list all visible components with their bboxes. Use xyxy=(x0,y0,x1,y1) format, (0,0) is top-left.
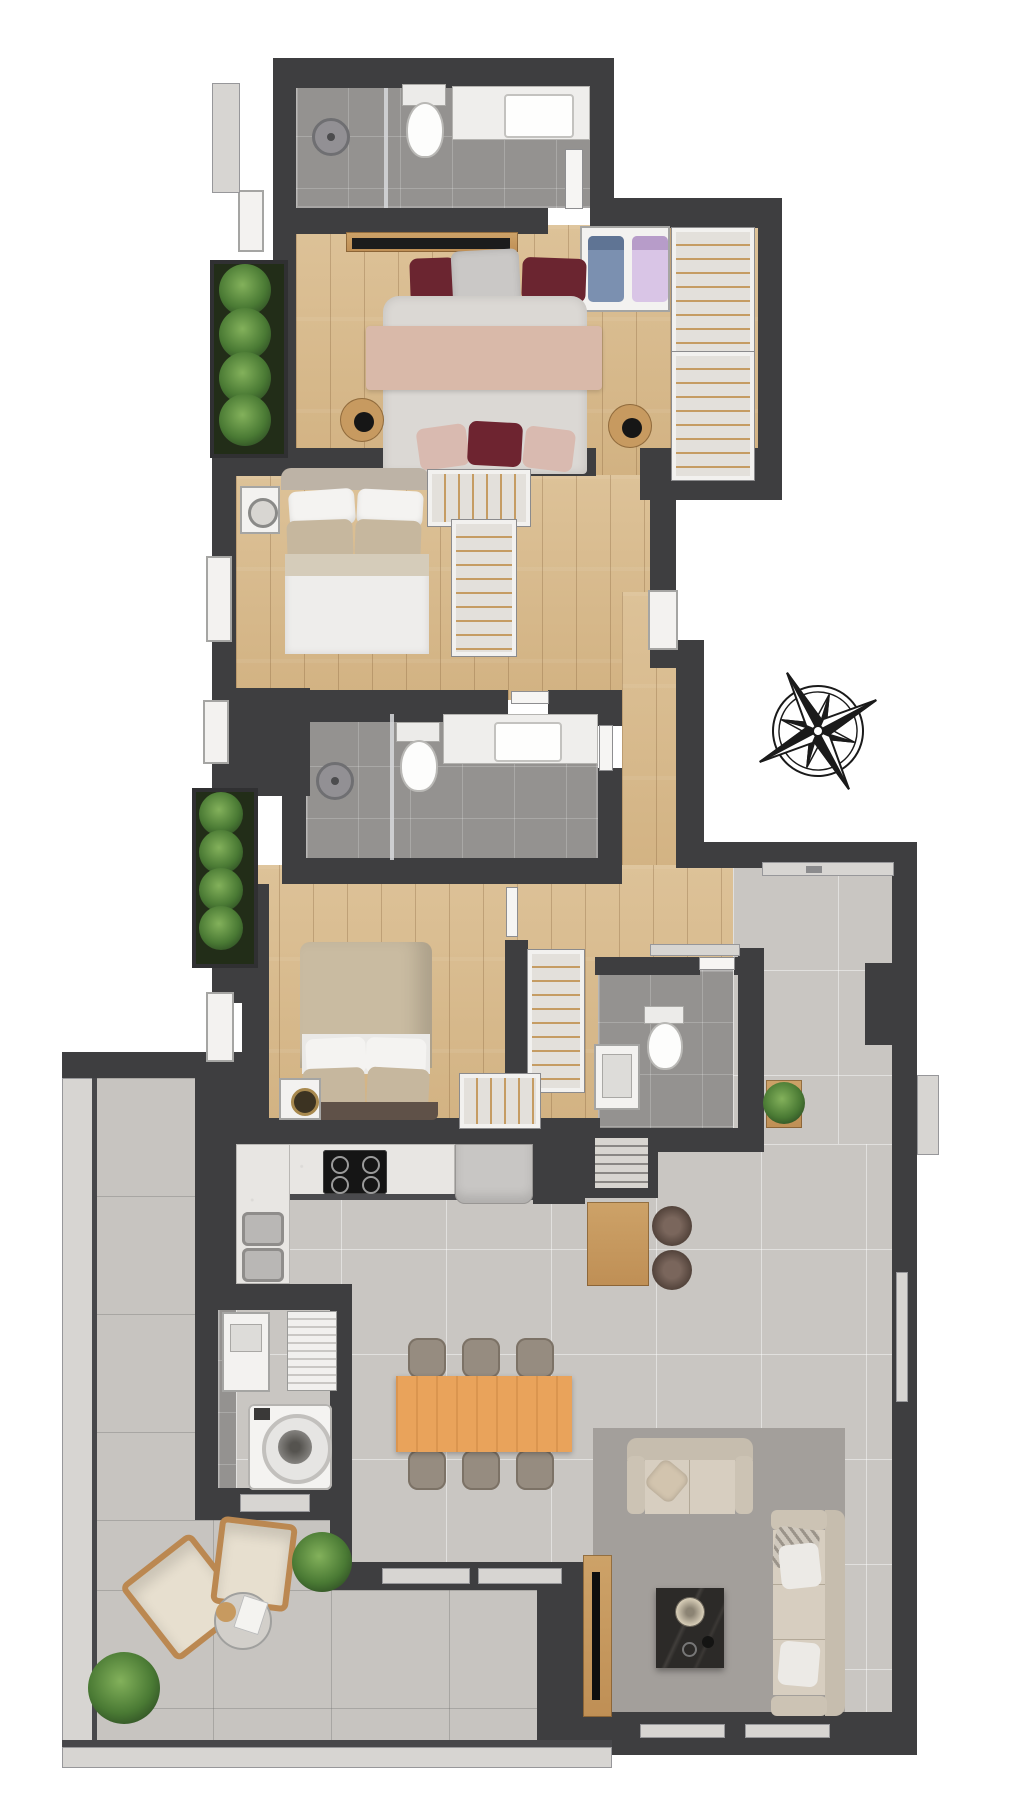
sofa-arm xyxy=(735,1456,753,1514)
kitchen-sink-icon xyxy=(242,1212,284,1246)
door-leaf xyxy=(507,888,517,936)
blanket-band xyxy=(285,554,429,576)
sofa-arm xyxy=(771,1696,827,1716)
terrace-door xyxy=(382,1568,470,1584)
burner xyxy=(362,1176,380,1194)
wall xyxy=(273,208,548,234)
burner xyxy=(362,1156,380,1174)
shower-icon xyxy=(316,762,354,800)
tv-icon xyxy=(592,1572,600,1700)
window-icon xyxy=(238,190,264,252)
wall xyxy=(676,640,704,865)
wall xyxy=(505,940,528,1090)
toilet-tank xyxy=(396,722,440,742)
lamp-icon xyxy=(291,1088,319,1116)
window-icon xyxy=(203,700,229,764)
wall xyxy=(598,698,622,726)
breakfast-table xyxy=(587,1202,649,1286)
tv-runner xyxy=(352,238,510,249)
decor-ring xyxy=(682,1642,697,1657)
window-icon xyxy=(640,1724,725,1738)
stool-icon xyxy=(652,1206,692,1246)
pillow-pink xyxy=(415,423,470,472)
burner xyxy=(331,1156,349,1174)
plant-icon xyxy=(88,1652,160,1724)
shirt-collar xyxy=(588,236,624,250)
wall xyxy=(865,963,892,1045)
sofa-cushion xyxy=(773,1585,825,1640)
dining-chair xyxy=(462,1338,500,1378)
washer-controls xyxy=(254,1408,270,1420)
door-leaf xyxy=(700,958,734,969)
terrace-parapet-line xyxy=(92,1078,97,1740)
laundry-basin xyxy=(230,1324,262,1352)
closet-hangers xyxy=(528,950,584,1092)
terrace-parapet-bottom-line xyxy=(62,1740,612,1747)
toilet-icon xyxy=(406,102,444,158)
tv-wall xyxy=(537,1565,583,1745)
closet-hangers xyxy=(672,352,754,480)
sliding-door xyxy=(650,944,740,956)
laundry-tank xyxy=(288,1312,336,1390)
dining-chair xyxy=(516,1450,554,1490)
pillow-maroon xyxy=(467,421,523,468)
wall xyxy=(658,1128,742,1152)
washer-drum-center xyxy=(278,1430,312,1464)
shirt-collar xyxy=(632,236,668,250)
lamp-icon xyxy=(622,418,642,438)
door-leaf xyxy=(600,726,612,770)
wall xyxy=(650,650,676,668)
throw-pillow-white xyxy=(778,1542,822,1590)
lamp-icon xyxy=(354,412,374,432)
terrace-parapet-bottom xyxy=(62,1747,612,1768)
shaft-bricks xyxy=(595,1138,648,1188)
stool-icon xyxy=(652,1250,692,1290)
window-icon xyxy=(648,590,678,650)
compass-rose-icon xyxy=(718,631,918,831)
wall xyxy=(236,1118,600,1144)
sink-basin xyxy=(602,1054,632,1098)
column xyxy=(212,83,240,193)
floor-plan xyxy=(0,0,1024,1820)
wall xyxy=(650,476,676,592)
wall xyxy=(738,948,764,1152)
laundry-door xyxy=(240,1494,310,1512)
window-icon xyxy=(206,992,234,1062)
window-icon xyxy=(745,1724,830,1738)
wall xyxy=(590,58,614,198)
closet-hangers xyxy=(460,1074,540,1128)
toilet-icon xyxy=(647,1022,683,1070)
burner xyxy=(331,1176,349,1194)
sink-icon xyxy=(494,722,562,762)
wall xyxy=(533,1144,585,1204)
decor-cup xyxy=(702,1636,714,1648)
decor-bowl xyxy=(676,1598,704,1626)
closet-hangers xyxy=(452,520,516,656)
table-tray xyxy=(216,1602,236,1622)
wall xyxy=(195,1310,218,1490)
dining-chair xyxy=(462,1450,500,1490)
lamp-icon xyxy=(248,498,278,528)
window-icon xyxy=(896,1272,908,1402)
dining-chair xyxy=(408,1338,446,1378)
throw-pillow-white xyxy=(777,1640,821,1687)
bed-blanket xyxy=(366,326,602,390)
plant-icon xyxy=(219,394,271,446)
dining-chair xyxy=(516,1338,554,1378)
sliding-door xyxy=(762,862,894,876)
door-leaf xyxy=(566,150,582,208)
sofa-cushion xyxy=(690,1460,735,1514)
fridge-icon xyxy=(455,1144,533,1204)
plant-icon xyxy=(199,906,243,950)
closet-hangers xyxy=(428,470,530,526)
shower-glass xyxy=(384,88,388,208)
sink-icon xyxy=(504,94,574,138)
plant-icon xyxy=(292,1532,352,1592)
bed-headboard xyxy=(281,468,429,490)
sofa-arm xyxy=(627,1456,645,1514)
shower-glass xyxy=(390,714,394,860)
wall xyxy=(195,1284,352,1310)
terrace-parapet-left xyxy=(62,1078,95,1768)
wall xyxy=(758,228,782,475)
dining-chair xyxy=(408,1450,446,1490)
door-leaf xyxy=(512,692,548,703)
wall xyxy=(590,198,782,228)
wall xyxy=(595,957,700,975)
plant-icon xyxy=(763,1082,805,1124)
shower-icon xyxy=(312,118,350,156)
toilet-icon xyxy=(400,740,438,792)
dining-table xyxy=(396,1376,572,1452)
window-icon xyxy=(917,1075,939,1155)
sofa-back xyxy=(825,1510,845,1716)
kitchen-sink-icon xyxy=(242,1248,284,1282)
sliding-door-handle xyxy=(806,866,822,873)
sofa-back xyxy=(627,1438,753,1460)
terrace-door xyxy=(478,1568,562,1584)
pillow-pink xyxy=(522,425,577,473)
window-icon xyxy=(206,556,232,642)
wall xyxy=(282,858,622,884)
closet-hangers xyxy=(672,228,754,356)
